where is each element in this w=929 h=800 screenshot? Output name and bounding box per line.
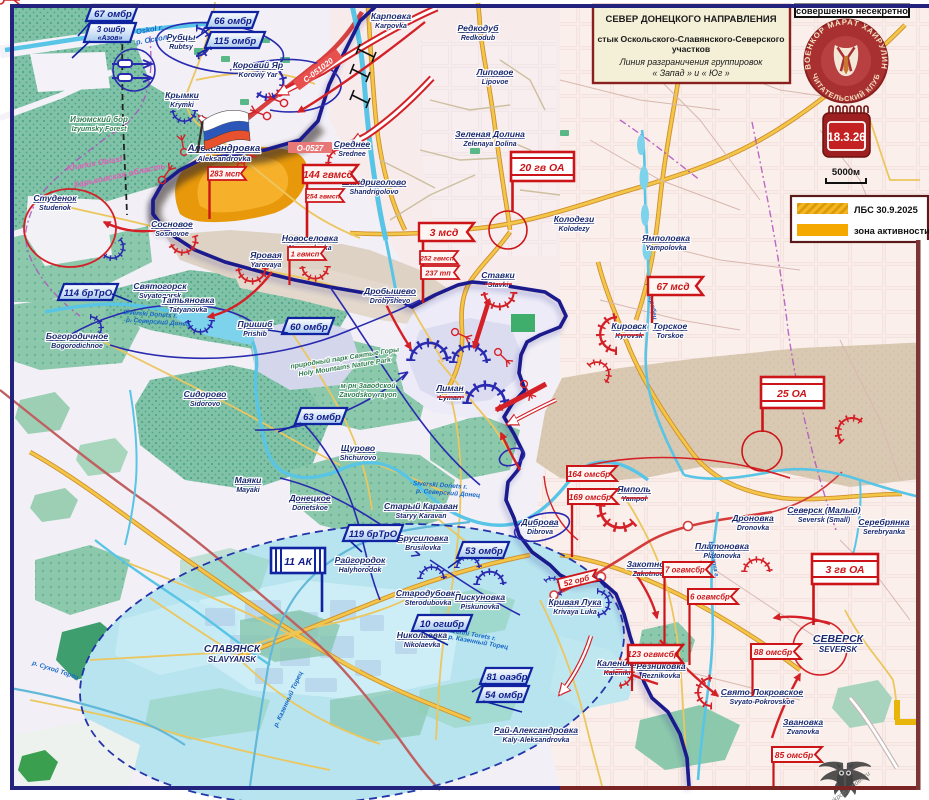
svg-text:Зеленая Долина: Зеленая Долина — [455, 129, 525, 139]
svg-text:Yampol: Yampol — [621, 496, 647, 503]
svg-text:«Азов»: «Азов» — [98, 35, 123, 42]
svg-text:3 гв ОА: 3 гв ОА — [826, 564, 865, 576]
svg-text:Новоселовка: Новоселовка — [282, 233, 338, 243]
svg-text:Колодези: Колодези — [554, 214, 595, 224]
svg-text:114 брТрО: 114 брТрО — [64, 288, 113, 299]
svg-text:Izyumsky Forest: Izyumsky Forest — [72, 126, 128, 133]
svg-text:Сидорово: Сидорово — [184, 389, 227, 399]
svg-text:115 омбр: 115 омбр — [214, 36, 256, 47]
svg-text:Брусиловка: Брусиловка — [398, 533, 449, 543]
svg-text:Серебрянка: Серебрянка — [858, 517, 909, 527]
svg-text:Кривая Лука: Кривая Лука — [548, 597, 601, 607]
svg-text:3 мсд: 3 мсд — [430, 227, 459, 239]
svg-text:Маяки: Маяки — [235, 475, 262, 485]
svg-text:Святогорск: Святогорск — [133, 281, 187, 291]
svg-text:Старый Караван: Старый Караван — [384, 501, 459, 511]
svg-text:Rubtsy: Rubtsy — [169, 44, 194, 51]
svg-text:Райгородок: Райгородок — [335, 555, 386, 565]
svg-text:81 оаэбр: 81 оаэбр — [486, 672, 527, 683]
svg-text:Крымки: Крымки — [165, 90, 200, 100]
svg-text:СЕВЕРСК: СЕВЕРСК — [813, 633, 865, 645]
svg-text:Shandrigolovo: Shandrigolovo — [350, 189, 400, 196]
svg-text:Ямполь: Ямполь — [616, 484, 651, 494]
svg-text:252 гвмсп: 252 гвмсп — [419, 256, 455, 263]
svg-text:3 ошбр: 3 ошбр — [97, 25, 126, 34]
svg-text:Mayaki: Mayaki — [236, 487, 260, 494]
svg-text:Линия разграничения группирово: Линия разграничения группировок — [619, 57, 764, 67]
svg-text:Татьяновка: Татьяновка — [162, 295, 215, 305]
svg-text:Рубцы: Рубцы — [167, 32, 196, 42]
svg-text:Карповка: Карповка — [371, 11, 411, 21]
svg-text:Drobyshevo: Drobyshevo — [370, 298, 411, 305]
svg-text:237 тп: 237 тп — [424, 269, 451, 278]
svg-text:Koroviy Yar: Koroviy Yar — [239, 72, 279, 79]
svg-text:Zakotnoe: Zakotnoe — [631, 571, 663, 578]
svg-text:Piskunovka: Piskunovka — [461, 604, 500, 611]
svg-text:Ямполовка: Ямполовка — [641, 233, 690, 243]
svg-text:88 омсбр: 88 омсбр — [754, 647, 792, 657]
svg-text:Дробышево: Дробышево — [363, 286, 416, 296]
svg-text:Студенок: Студенок — [33, 193, 77, 203]
svg-text:Sterodubovka: Sterodubovka — [405, 600, 452, 607]
svg-text:Krivaya Luka: Krivaya Luka — [553, 609, 597, 616]
svg-text:Пискуновка: Пискуновка — [455, 592, 506, 602]
svg-text:Yampolovka: Yampolovka — [646, 245, 687, 252]
svg-text:Редкодуб: Редкодуб — [458, 23, 500, 33]
svg-text:Сосновое: Сосновое — [151, 219, 193, 229]
svg-text:Redkodub: Redkodub — [461, 35, 496, 42]
svg-text:Дроновка: Дроновка — [731, 513, 774, 523]
svg-text:6 огвмсбр: 6 огвмсбр — [690, 593, 730, 602]
svg-text:Липовое: Липовое — [476, 67, 514, 77]
svg-text:254 гвмсп: 254 гвмсп — [305, 194, 341, 201]
svg-text:О-0527: О-0527 — [297, 144, 324, 153]
svg-text:Nikolaevka: Nikolaevka — [404, 642, 441, 649]
svg-text:Kaly-Aleksandrovka: Kaly-Aleksandrovka — [503, 737, 570, 744]
svg-text:Svyato-Pokrovskoe: Svyato-Pokrovskoe — [730, 699, 795, 706]
svg-text:Коровий Яр: Коровий Яр — [233, 60, 283, 70]
svg-text:67 мсд: 67 мсд — [656, 282, 689, 293]
svg-text:Стародубовка: Стародубовка — [396, 588, 461, 598]
svg-text:Brusilovka: Brusilovka — [405, 545, 441, 552]
svg-text:Ставки: Ставки — [481, 270, 515, 280]
svg-text:Звановка: Звановка — [783, 717, 823, 727]
svg-text:7 огвмсбр: 7 огвмсбр — [665, 566, 705, 575]
svg-text:5000м: 5000м — [832, 167, 860, 178]
svg-text:123 огвмсбр: 123 огвмсбр — [627, 649, 679, 659]
svg-text:Торское: Торское — [653, 321, 688, 331]
svg-text:Kolodezy: Kolodezy — [558, 226, 590, 233]
svg-text:SLAVYANSK: SLAVYANSK — [208, 655, 257, 664]
svg-text:Yarovaya: Yarovaya — [251, 262, 282, 269]
svg-text:119 брТрО: 119 брТрО — [349, 529, 398, 540]
svg-text:Kyrovsk: Kyrovsk — [615, 333, 644, 340]
svg-text:Zavodskoy rayon: Zavodskoy rayon — [338, 392, 397, 399]
svg-text:25 ОА: 25 ОА — [776, 388, 807, 400]
svg-text:Dibrova: Dibrova — [527, 529, 553, 536]
svg-text:Donetskoe: Donetskoe — [292, 505, 328, 512]
svg-text:Kaleniki: Kaleniki — [604, 670, 632, 677]
svg-text:Seversk (Small): Seversk (Small) — [798, 517, 851, 524]
svg-text:Щурово: Щурово — [341, 443, 375, 453]
svg-text:Пришиб: Пришиб — [238, 319, 274, 329]
svg-text:Stavki: Stavki — [488, 282, 510, 289]
svg-text:10 огшбр: 10 огшбр — [420, 619, 464, 630]
svg-text:Reznikovka: Reznikovka — [642, 673, 681, 680]
svg-text:Кировск: Кировск — [611, 321, 647, 331]
svg-text:53 омбр: 53 омбр — [465, 546, 503, 557]
svg-text:Zelenaya Dolina: Zelenaya Dolina — [462, 141, 516, 148]
svg-text:Sidorovo: Sidorovo — [190, 401, 221, 408]
svg-text:стык Оскольского-Славянского-С: стык Оскольского-Славянского-Северского — [598, 34, 785, 44]
svg-text:60 омбр: 60 омбр — [290, 322, 328, 333]
svg-text:Рай-Александровка: Рай-Александровка — [494, 725, 578, 735]
svg-text:67 омбр: 67 омбр — [94, 9, 132, 20]
svg-text:Srednee: Srednee — [338, 151, 366, 158]
svg-text:Яровая: Яровая — [249, 250, 282, 260]
svg-text:Serebryanka: Serebryanka — [863, 529, 905, 536]
svg-text:Prishib: Prishib — [243, 331, 267, 338]
svg-text:164 омсбр: 164 омсбр — [568, 469, 611, 479]
svg-text:54 омбр: 54 омбр — [485, 690, 523, 701]
svg-text:Halyhorodok: Halyhorodok — [339, 567, 383, 574]
svg-text:SEVERSK: SEVERSK — [819, 645, 858, 654]
svg-text:Среднее: Среднее — [334, 139, 371, 149]
svg-text:169 омсбр: 169 омсбр — [569, 492, 612, 502]
svg-text:Dronovka: Dronovka — [737, 525, 769, 532]
svg-text:63 омбр: 63 омбр — [303, 412, 341, 423]
svg-text:Lyman: Lyman — [439, 395, 462, 402]
svg-text:283 мсп: 283 мсп — [209, 170, 240, 179]
svg-text:144 гвмсд: 144 гвмсд — [303, 170, 353, 181]
svg-text:85 омсбр: 85 омсбр — [775, 750, 813, 760]
svg-text:ЛБС 30.9.2025: ЛБС 30.9.2025 — [854, 205, 918, 215]
svg-text:участков: участков — [672, 44, 710, 54]
svg-text:66 омбр: 66 омбр — [214, 16, 252, 27]
svg-text:Лиман: Лиман — [435, 383, 464, 393]
svg-text:Zvanovka: Zvanovka — [786, 729, 819, 736]
svg-text:Lipovoe: Lipovoe — [482, 79, 509, 86]
svg-text:Torskoe: Torskoe — [657, 333, 684, 340]
svg-text:Shchurovo: Shchurovo — [340, 455, 377, 462]
svg-text:18.3.26: 18.3.26 — [827, 132, 865, 144]
svg-text:Aleksandrovka: Aleksandrovka — [196, 154, 250, 163]
svg-text:м-рн Заводской: м-рн Заводской — [341, 382, 397, 390]
svg-text:СЕВЕР ДОНЕЦКОГО НАПРАВЛЕНИЯ: СЕВЕР ДОНЕЦКОГО НАПРАВЛЕНИЯ — [605, 14, 776, 25]
svg-text:20 гв ОА: 20 гв ОА — [519, 162, 565, 174]
svg-text:Staryy Karavan: Staryy Karavan — [396, 513, 447, 520]
svg-text:Studenok: Studenok — [39, 205, 72, 212]
svg-text:Изюмский бор: Изюмский бор — [70, 115, 128, 124]
svg-text:Karpovka: Karpovka — [375, 23, 407, 30]
svg-text:Северск (Малый): Северск (Малый) — [787, 505, 860, 515]
svg-text:Платоновка: Платоновка — [695, 541, 749, 551]
svg-text:1 гвмсп: 1 гвмсп — [291, 250, 320, 259]
svg-text:СЛАВЯНСК: СЛАВЯНСК — [204, 644, 261, 655]
svg-text:Sosnovoe: Sosnovoe — [155, 231, 189, 238]
svg-text:Bogorodichnoe: Bogorodichnoe — [51, 343, 103, 350]
svg-text:11 АК: 11 АК — [284, 556, 313, 568]
svg-text:« Запад » и « Юг »: « Запад » и « Юг » — [652, 68, 729, 78]
svg-text:Донецкое: Донецкое — [288, 493, 331, 503]
svg-text:Krymki: Krymki — [170, 102, 195, 109]
svg-text:Диброва: Диброва — [520, 517, 558, 527]
svg-text:зона активности: зона активности — [854, 226, 929, 236]
svg-text:Богородичное: Богородичное — [46, 331, 108, 341]
svg-text:Свято-Покровское: Свято-Покровское — [721, 687, 804, 697]
